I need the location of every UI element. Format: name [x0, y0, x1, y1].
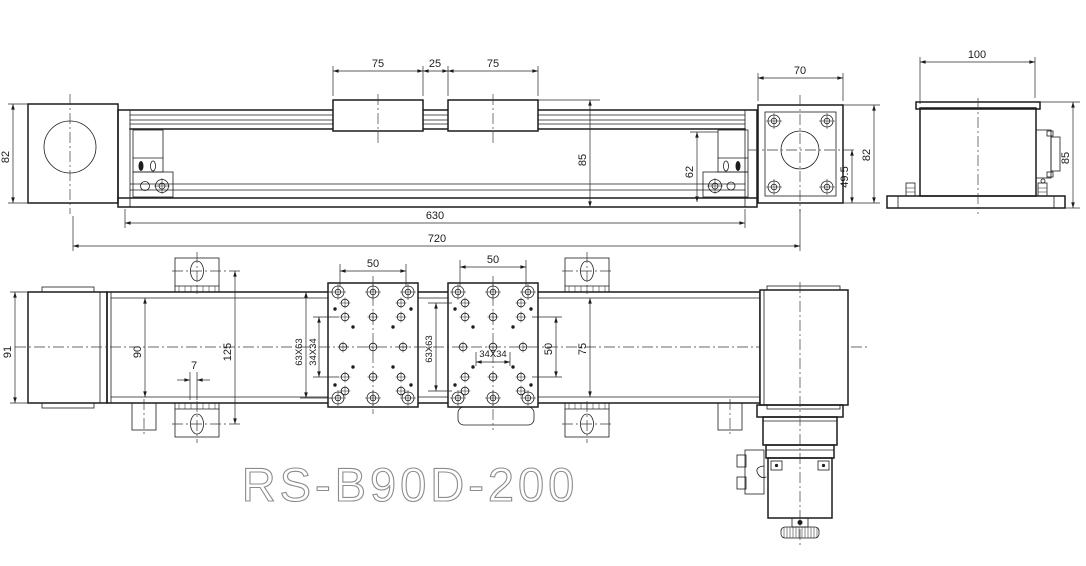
dim-flange-width: 70	[794, 65, 806, 77]
dim-plate1-hole-spacing: 50	[367, 258, 379, 270]
drawing-page: 75 25 75 82 85 62 630 720	[0, 0, 1086, 566]
dim-plate2-hole-spacing: 50	[487, 254, 499, 266]
dim-front-carriage2-width: 75	[487, 58, 499, 70]
dim-plate2-pattern: 63X63	[424, 335, 435, 362]
dim-flange-height: 82	[861, 149, 873, 161]
front-view: 75 25 75 82 85 62 630 720	[0, 58, 800, 251]
dim-front-carriage1-width: 75	[372, 58, 384, 70]
dim-plate2-inner-pattern: 34X34	[479, 349, 506, 360]
dim-front-carriage-gap: 25	[429, 58, 441, 70]
dim-front-end-block-height: 82	[0, 151, 12, 163]
dim-plate1-pattern: 63X63	[294, 338, 305, 365]
motor-side-view: 100 85	[887, 49, 1080, 214]
dim-front-overall-length: 720	[428, 233, 446, 245]
flange-end-view: 70 49.5 82	[748, 65, 880, 212]
dim-plan-body-width: 90	[132, 346, 144, 358]
dim-plan-rail-width: 75	[577, 343, 589, 355]
dim-front-base-length: 630	[426, 210, 444, 222]
dim-plan-foot-span: 125	[222, 343, 234, 361]
dim-side-height: 85	[1060, 152, 1072, 164]
dim-plate1-inner-pattern: 34X34	[308, 338, 319, 365]
model-title: RS-B90D-200	[242, 458, 579, 511]
dim-plan-foot-offset: 7	[191, 360, 197, 372]
cad-drawing: 75 25 75 82 85 62 630 720	[0, 0, 1086, 566]
dim-plan-end-cap-width: 91	[2, 346, 14, 358]
dim-side-width: 100	[968, 49, 986, 61]
dim-front-inner-height: 62	[684, 166, 696, 178]
dim-front-overall-height: 85	[577, 154, 589, 166]
dim-flange-center-height: 49.5	[839, 166, 851, 187]
dim-plate2-row-spacing: 50	[543, 343, 555, 355]
